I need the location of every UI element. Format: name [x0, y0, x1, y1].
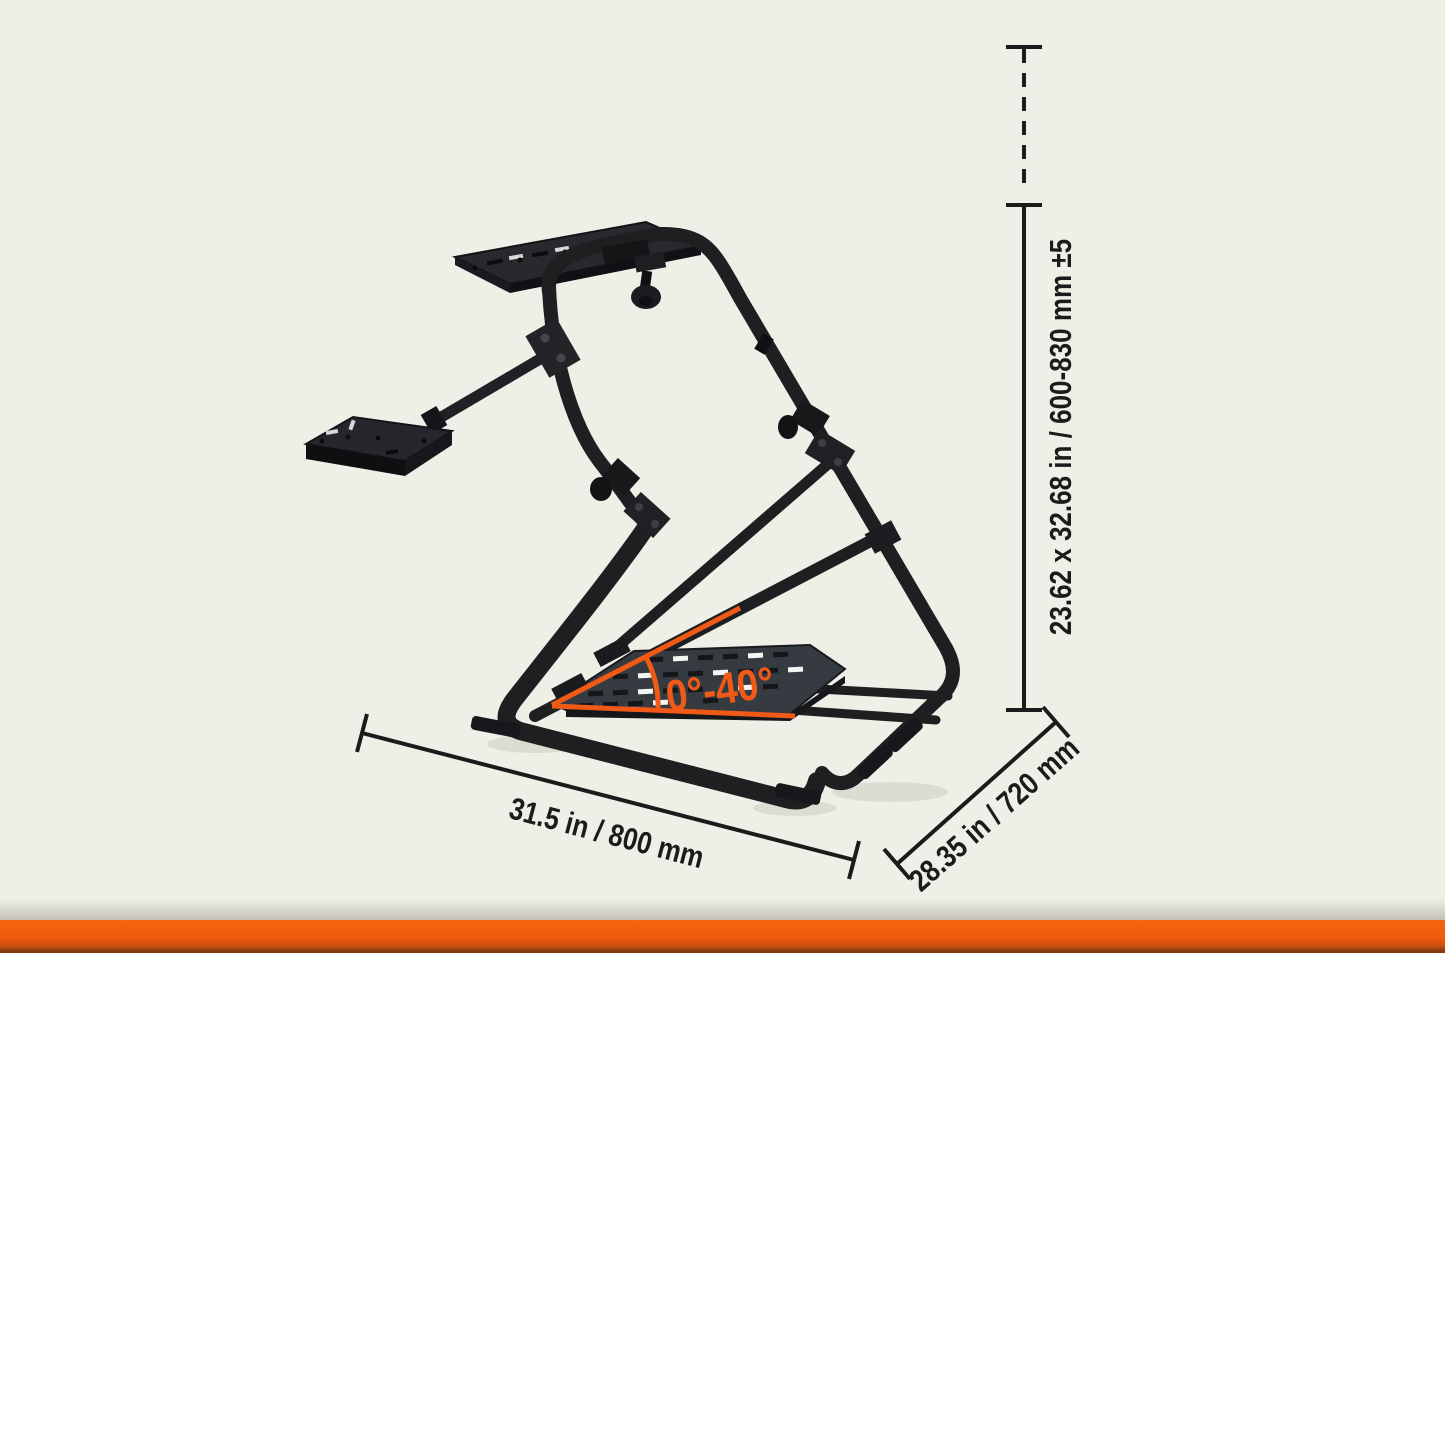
post-knob — [590, 477, 612, 501]
product-infographic: 0°-40° 31.5 in / 800 mm 28.35 in / 720 m — [0, 0, 1445, 1445]
accent-divider — [0, 920, 1445, 953]
bracket-screw — [834, 458, 842, 466]
section-shadow — [0, 898, 1445, 920]
bracket-screw — [635, 503, 643, 511]
product-photo-section: 0°-40° 31.5 in / 800 mm 28.35 in / 720 m — [0, 0, 1445, 920]
clamp-knob-center — [639, 296, 653, 306]
specs-section: Item Model Number: WS-L01 Main Material:… — [0, 953, 1445, 1445]
shifter-plate — [306, 406, 452, 476]
bracket-screw — [651, 520, 659, 528]
dimension-lines — [357, 47, 1069, 879]
depth-dimension-label: 28.35 in / 720 mm — [903, 731, 1086, 899]
length-dimension-label: 31.5 in / 800 mm — [506, 791, 708, 875]
fittings — [525, 239, 901, 554]
bracket-screw — [541, 334, 550, 343]
foot-pad — [856, 743, 895, 781]
wheel-stand-figure: 0°-40° 31.5 in / 800 mm 28.35 in / 720 m — [0, 0, 1445, 920]
bracket-screw — [557, 354, 566, 363]
leg-knob — [778, 415, 798, 439]
height-dimension-label: 23.62 x 32.68 in / 600-830 mm ±5 — [1044, 239, 1079, 635]
bracket-screw — [818, 439, 826, 447]
